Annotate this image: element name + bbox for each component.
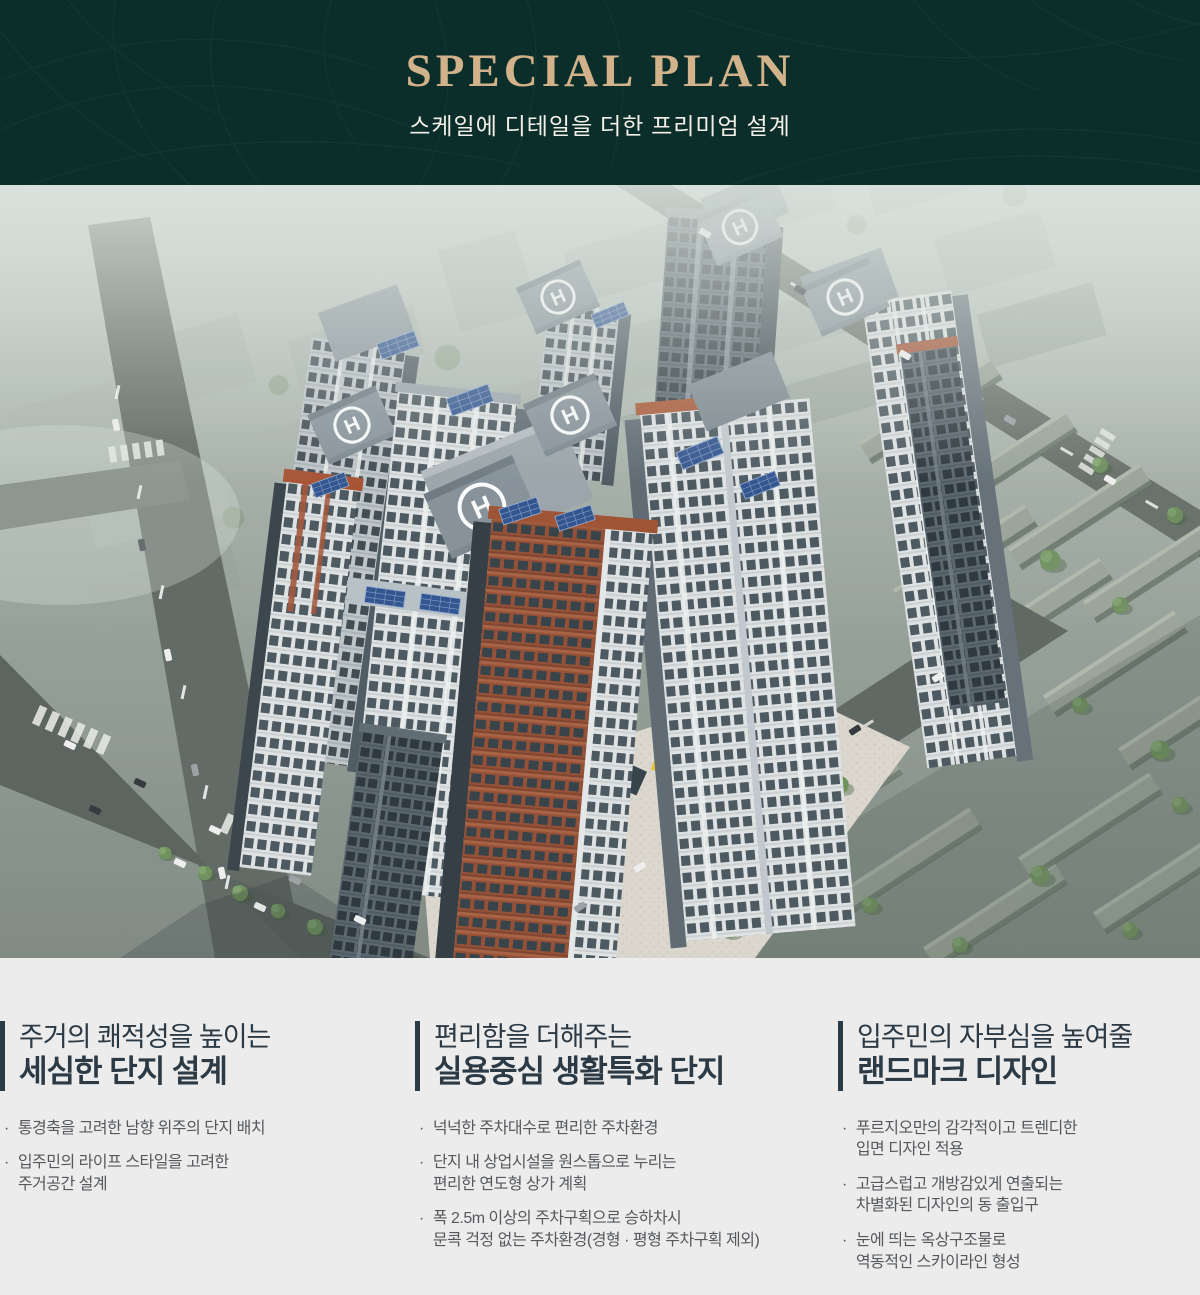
special-plan-page: SPECIAL PLAN 스케일에 디테일을 더한 프리미엄 설계 (0, 0, 1200, 1295)
feature-bullet: · 입주민의 라이프 스타일을 고려한 주거공간 설계 (4, 1152, 415, 1195)
feature-bullet: · 고급스럽고 개방감있게 연출되는 차별화된 디자인의 동 출입구 (842, 1174, 1200, 1217)
bullet-marker: · (4, 1118, 9, 1140)
aerial-complex-rendering: H (0, 185, 1200, 958)
hero-image: H (0, 185, 1200, 958)
bullet-marker: · (419, 1152, 424, 1195)
feature-bullet: · 통경축을 고려한 남향 위주의 단지 배치 (4, 1118, 415, 1140)
feature-title-line1: 주거의 쾌적성을 높이는 (19, 1021, 415, 1053)
feature-column-site-design: 주거의 쾌적성을 높이는 세심한 단지 설계 · 통경축을 고려한 남향 위주의… (0, 1021, 415, 1295)
bullet-marker: · (842, 1230, 847, 1273)
feature-bullet: · 넉넉한 주차대수로 편리한 주차환경 (419, 1118, 838, 1140)
bullet-marker: · (842, 1174, 847, 1217)
header-banner: SPECIAL PLAN 스케일에 디테일을 더한 프리미엄 설계 (0, 0, 1200, 185)
feature-title: 주거의 쾌적성을 높이는 세심한 단지 설계 (0, 1021, 415, 1091)
bullet-marker: · (419, 1118, 424, 1140)
feature-bullet-list: · 통경축을 고려한 남향 위주의 단지 배치 · 입주민의 라이프 스타일을 … (0, 1118, 415, 1196)
page-subtitle: 스케일에 디테일을 더한 프리미엄 설계 (0, 107, 1200, 141)
feature-title-line2: 랜드마크 디자인 (857, 1053, 1200, 1090)
feature-bullet: · 눈에 띄는 옥상구조물로 역동적인 스카이라인 형성 (842, 1230, 1200, 1273)
feature-bullet-list: · 푸르지오만의 감각적이고 트렌디한 입면 디자인 적용 · 고급스럽고 개방… (838, 1118, 1200, 1274)
page-title: SPECIAL PLAN (0, 0, 1200, 98)
feature-bullet: · 폭 2.5m 이상의 주차구획으로 승하차시 문콕 걱정 없는 주차환경(경… (419, 1208, 838, 1251)
feature-title-line1: 편리함을 더해주는 (434, 1021, 838, 1053)
bullet-marker: · (842, 1118, 847, 1161)
feature-column-landmark-design: 입주민의 자부심을 높여줄 랜드마크 디자인 · 푸르지오만의 감각적이고 트렌… (838, 1021, 1200, 1295)
bullet-marker: · (4, 1152, 9, 1195)
feature-title-line2: 세심한 단지 설계 (19, 1053, 415, 1090)
bullet-marker: · (419, 1208, 424, 1251)
features-section: 주거의 쾌적성을 높이는 세심한 단지 설계 · 통경축을 고려한 남향 위주의… (0, 958, 1200, 1295)
feature-bullet: · 푸르지오만의 감각적이고 트렌디한 입면 디자인 적용 (842, 1118, 1200, 1161)
feature-bullet-list: · 넉넉한 주차대수로 편리한 주차환경 · 단지 내 상업시설을 원스톱으로 … (415, 1118, 838, 1252)
feature-title: 편리함을 더해주는 실용중심 생활특화 단지 (415, 1021, 838, 1091)
feature-bullet: · 단지 내 상업시설을 원스톱으로 누리는 편리한 연도형 상가 계획 (419, 1152, 838, 1195)
feature-title-line1: 입주민의 자부심을 높여줄 (857, 1021, 1200, 1053)
feature-title-line2: 실용중심 생활특화 단지 (434, 1053, 838, 1090)
feature-column-living-convenience: 편리함을 더해주는 실용중심 생활특화 단지 · 넉넉한 주차대수로 편리한 주… (415, 1021, 838, 1295)
feature-title: 입주민의 자부심을 높여줄 랜드마크 디자인 (838, 1021, 1200, 1091)
